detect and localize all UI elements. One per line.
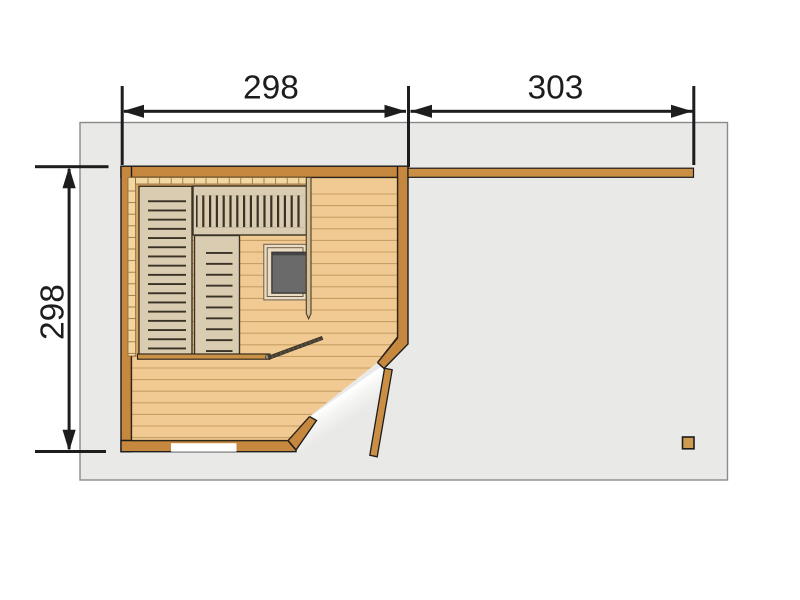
svg-text:298: 298 [35, 284, 72, 340]
svg-text:298: 298 [243, 70, 299, 107]
svg-text:303: 303 [528, 70, 584, 107]
